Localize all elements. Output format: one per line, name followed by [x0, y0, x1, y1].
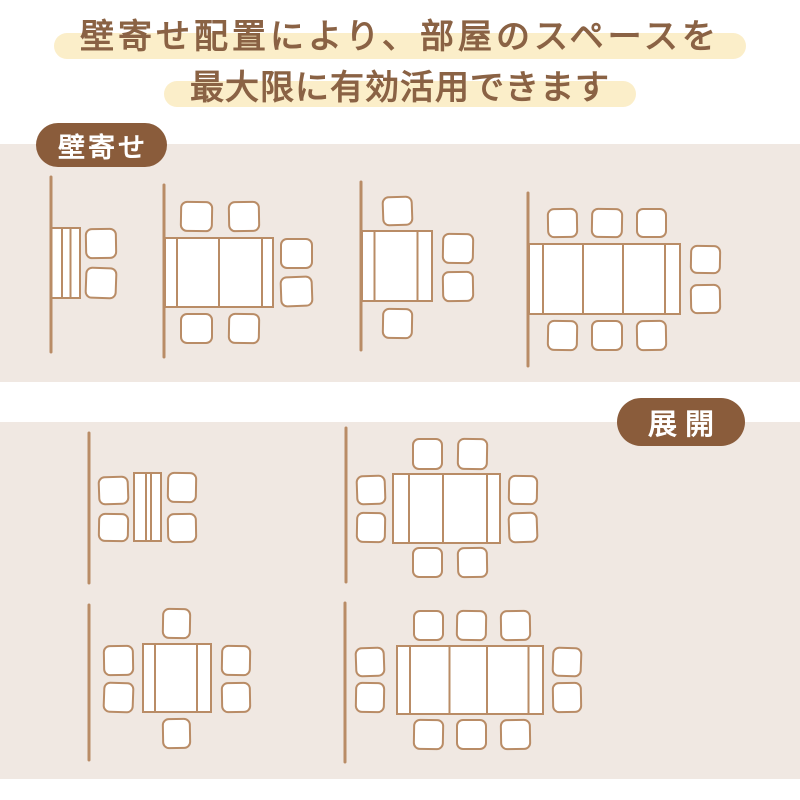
- diagram-compact-table-4-chairs: [361, 182, 473, 350]
- chair: [443, 234, 474, 264]
- chair: [553, 683, 582, 712]
- diagram-folded-table-4-chairs: [89, 433, 196, 583]
- chair: [383, 309, 413, 339]
- heading-highlight-1: 壁寄せ配置により、部屋のスペースを: [54, 33, 746, 59]
- chair: [509, 513, 538, 543]
- chair: [592, 209, 622, 238]
- chair: [501, 720, 531, 750]
- chair: [413, 548, 442, 577]
- heading-row-2: 最大限に有効活用できます: [0, 81, 800, 107]
- diagram-fully-extended-table-8-chairs: [528, 193, 720, 366]
- chair: [168, 473, 197, 502]
- chair: [457, 611, 487, 641]
- chair: [383, 197, 413, 226]
- chair: [691, 246, 720, 274]
- chair: [548, 209, 577, 238]
- chair: [458, 548, 488, 578]
- chair: [229, 314, 260, 344]
- chair: [104, 646, 134, 676]
- chair: [509, 476, 537, 504]
- heading-line-2: 最大限に有効活用できます: [190, 71, 610, 105]
- table: [52, 228, 81, 298]
- chair: [99, 477, 129, 505]
- heading-highlight-2: 最大限に有効活用できます: [164, 81, 636, 107]
- chair: [222, 646, 251, 675]
- chair: [86, 229, 117, 259]
- furniture-layout-infographic: 壁寄せ配置により、部屋のスペースを 最大限に有効活用できます 壁寄せ 展開: [0, 0, 800, 800]
- chair: [229, 202, 260, 232]
- chair: [691, 285, 720, 314]
- chair: [548, 321, 578, 351]
- chair: [163, 609, 191, 638]
- chair: [85, 267, 116, 298]
- chair: [181, 202, 213, 232]
- chair: [222, 683, 251, 712]
- chair: [637, 321, 667, 351]
- chair: [356, 648, 385, 677]
- chair: [357, 513, 386, 542]
- diagram-folded-table-2-chairs: [51, 177, 117, 352]
- chair: [181, 314, 212, 343]
- chair: [637, 209, 666, 237]
- chair: [501, 611, 531, 641]
- diagram-compact-table-6-chairs: [89, 605, 250, 760]
- chair: [592, 321, 622, 350]
- chair: [553, 648, 582, 677]
- expanded-badge: 展開: [617, 398, 745, 446]
- chair: [281, 276, 313, 306]
- chair: [168, 514, 196, 542]
- chair: [99, 514, 128, 542]
- diagram-half-extended-table-6-chairs: [164, 185, 312, 357]
- chair: [356, 683, 385, 712]
- chair: [414, 611, 443, 640]
- chair: [414, 720, 444, 750]
- heading: 壁寄せ配置により、部屋のスペースを 最大限に有効活用できます: [0, 33, 800, 129]
- diagram-extended-table-8-chairs: [346, 428, 537, 582]
- chair: [457, 720, 486, 749]
- heading-line-1: 壁寄せ配置により、部屋のスペースを: [80, 20, 720, 54]
- heading-row-1: 壁寄せ配置により、部屋のスペースを: [0, 33, 800, 59]
- chair: [443, 272, 474, 302]
- table: [143, 644, 211, 712]
- chair: [413, 439, 442, 469]
- table: [362, 231, 432, 301]
- chair: [281, 239, 312, 268]
- chair: [458, 439, 488, 470]
- wall-side-badge: 壁寄せ: [36, 123, 167, 167]
- table: [134, 473, 161, 541]
- chair: [104, 683, 134, 713]
- chair: [357, 476, 386, 505]
- table: [529, 244, 680, 314]
- chair: [163, 719, 191, 748]
- table: [397, 646, 543, 714]
- diagram-fully-extended-table-10-chairs: [345, 603, 581, 762]
